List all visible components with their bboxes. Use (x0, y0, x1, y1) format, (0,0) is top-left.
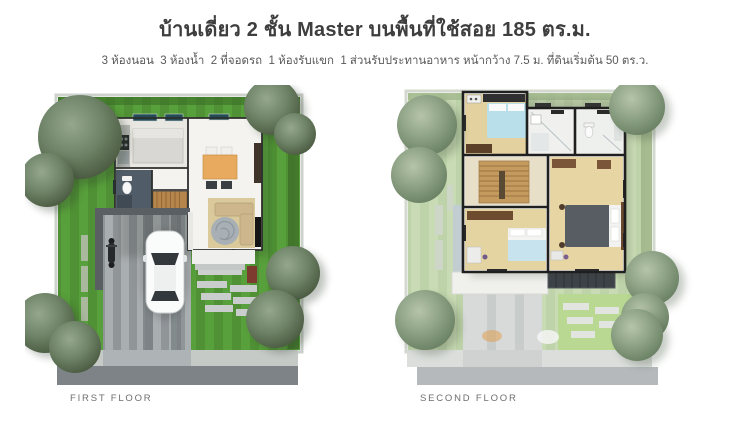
bedside-stool (559, 242, 565, 248)
floor-plans: FIRST FLOOR (0, 85, 750, 404)
living-area (208, 198, 261, 255)
side-mirror (183, 255, 187, 262)
tv (255, 217, 261, 247)
side-wall (453, 205, 463, 272)
driveway-faded (463, 294, 542, 350)
windshield (151, 253, 179, 265)
first-floor-label: FIRST FLOOR (70, 393, 375, 404)
pillow (611, 209, 619, 223)
toilet (585, 127, 593, 138)
first-floor-figure: FIRST FLOOR (25, 85, 375, 404)
pillow (489, 104, 506, 111)
stair-railing (153, 189, 187, 192)
pillow (510, 229, 525, 236)
first-floor-plan-image (25, 85, 375, 390)
sink (531, 115, 541, 124)
bedroom-3 (463, 209, 546, 272)
window (209, 114, 229, 120)
pillow (527, 229, 542, 236)
dining-table (203, 155, 237, 179)
dining-chair (221, 147, 232, 155)
chair (564, 255, 569, 260)
second-floor-figure: SECOND FLOOR (375, 85, 725, 404)
desk (467, 247, 481, 263)
staircase (465, 157, 546, 205)
wardrobe (552, 159, 576, 168)
page-subtitle: 3 ห้องนอน 3 ห้องน้ำ 2 ที่จอดรถ 1 ห้องรับ… (0, 52, 750, 70)
stair-railing (499, 171, 505, 199)
pillow (508, 104, 524, 111)
car (141, 230, 189, 320)
window (597, 110, 611, 114)
second-floor-label: SECOND FLOOR (420, 393, 725, 404)
dresser (466, 144, 492, 153)
toilet (122, 176, 132, 181)
low-wall (188, 212, 193, 250)
wardrobe (483, 94, 525, 102)
garden-path (81, 235, 88, 321)
dining-chair (206, 181, 217, 189)
bed-blanket (508, 240, 546, 261)
dining-chair (221, 181, 232, 189)
car-roof-faded (537, 330, 559, 344)
pillow (611, 227, 619, 241)
tall-cabinet (254, 143, 262, 183)
bathroom-2 (529, 110, 573, 153)
shower-tray (531, 133, 549, 151)
bedside-stool (559, 204, 565, 210)
header: บ้านเดี่ยว 2 ชั้น Master บนพื้นที่ใช้สอย… (0, 0, 750, 85)
side-mirror (143, 255, 147, 262)
chair (483, 255, 488, 260)
rear-window (151, 291, 179, 301)
window (551, 110, 564, 114)
road (417, 367, 658, 385)
dresser (597, 160, 611, 169)
sofa (240, 214, 253, 245)
staircase (153, 189, 187, 211)
wardrobe (467, 211, 513, 220)
road (57, 366, 298, 385)
bathroom (113, 170, 152, 211)
brochure-page: บ้านเดี่ยว 2 ชั้น Master บนพื้นที่ใช้สอย… (0, 0, 750, 422)
bedroom-2 (463, 94, 526, 154)
dining-chair (206, 147, 217, 155)
driveway-curb-cut (463, 350, 542, 367)
patio-table (482, 330, 502, 342)
master-bedroom (550, 157, 626, 272)
toilet (123, 182, 132, 194)
page-title: บ้านเดี่ยว 2 ชั้น Master บนพื้นที่ใช้สอย… (0, 13, 750, 45)
second-floor-plan-image (375, 85, 725, 390)
ceiling-fixture (467, 95, 481, 103)
bed-blanket (565, 205, 611, 247)
planter-box (247, 266, 257, 283)
driveway-curb-cut (103, 350, 191, 366)
desk (551, 251, 563, 260)
